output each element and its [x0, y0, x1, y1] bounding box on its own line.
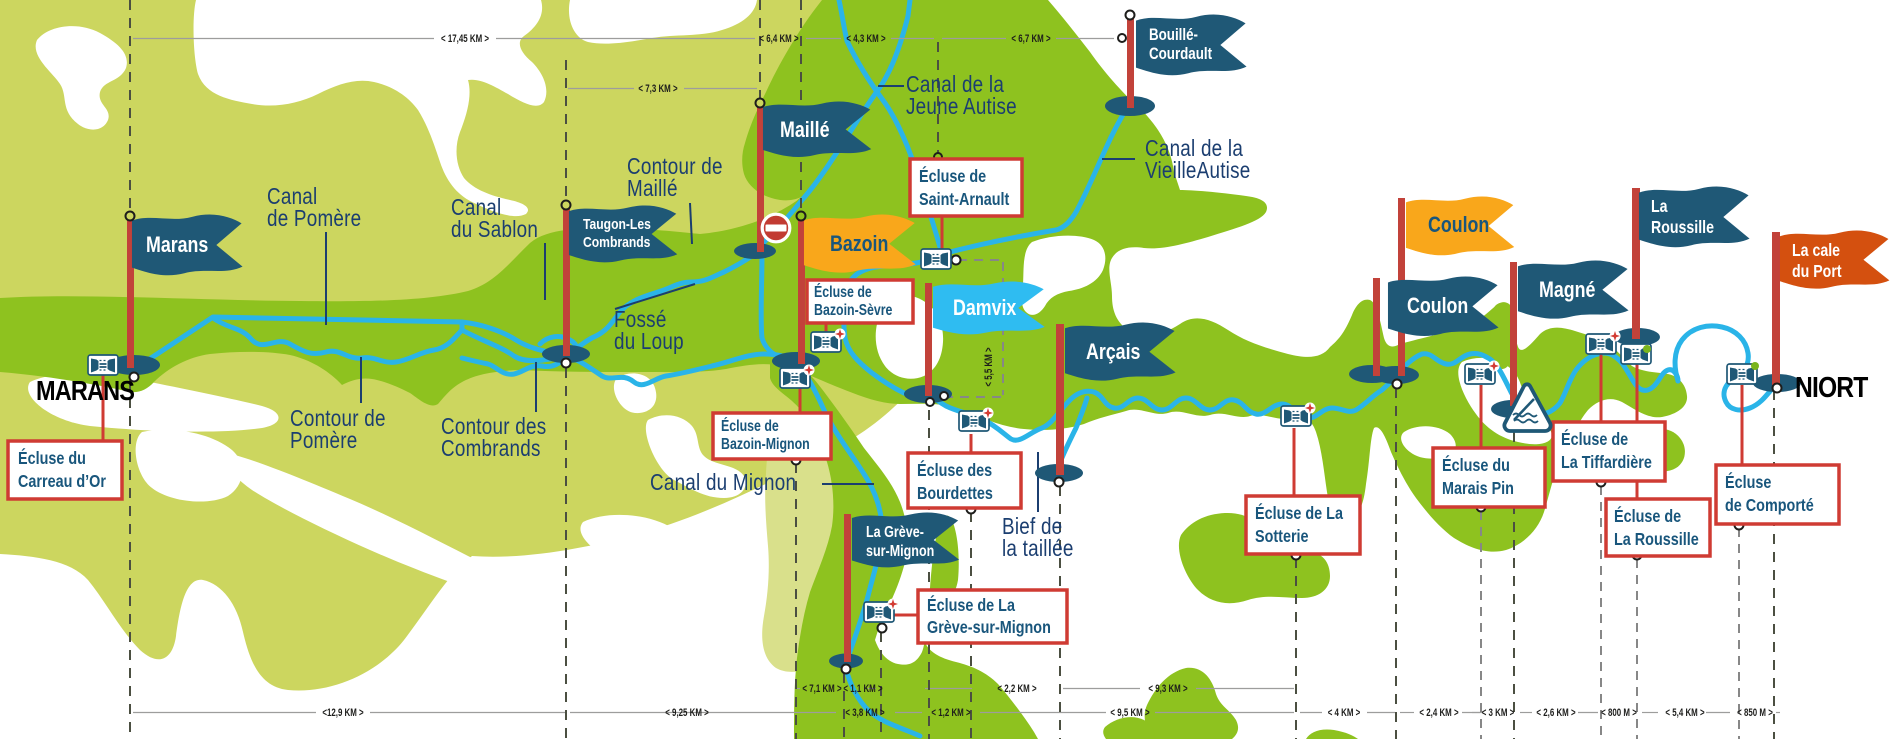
svg-text:Bazoin-Sèvre: Bazoin-Sèvre — [814, 301, 893, 319]
svg-text:Marans: Marans — [146, 233, 208, 257]
svg-text:Jeune Autise: Jeune Autise — [906, 94, 1017, 119]
svg-text:Écluse de: Écluse de — [814, 283, 872, 301]
svg-text:du Sablon: du Sablon — [451, 217, 538, 242]
svg-text:Coulon: Coulon — [1428, 213, 1489, 237]
svg-text:NIORT: NIORT — [1795, 371, 1869, 403]
svg-text:Bouillé-: Bouillé- — [1149, 26, 1198, 45]
svg-text:< 9,5 KM >: < 9,5 KM > — [1110, 707, 1149, 720]
svg-text:Maillé: Maillé — [627, 176, 678, 201]
svg-text:Roussille: Roussille — [1651, 219, 1714, 238]
svg-text:<12,9 KM >: <12,9 KM > — [322, 707, 364, 720]
svg-text:< 800 M >: < 800 M > — [1601, 707, 1637, 720]
svg-text:< 4,3 KM >: < 4,3 KM > — [846, 33, 885, 46]
svg-text:de Comporté: de Comporté — [1725, 496, 1814, 516]
svg-text:Magné: Magné — [1539, 278, 1595, 302]
svg-text:Bourdettes: Bourdettes — [917, 484, 993, 504]
svg-text:la taillée: la taillée — [1002, 536, 1074, 561]
svg-text:La cale: La cale — [1792, 242, 1840, 261]
svg-text:du Loup: du Loup — [614, 329, 684, 354]
svg-text:< 3 KM >: < 3 KM > — [1482, 707, 1515, 720]
svg-text:< 1,2 KM >: < 1,2 KM > — [931, 707, 970, 720]
svg-text:< 7,1 KM >: < 7,1 KM > — [802, 683, 841, 696]
svg-text:< 9,3 KM >: < 9,3 KM > — [1148, 683, 1187, 696]
svg-text:< 850 M >: < 850 M > — [1737, 707, 1773, 720]
svg-text:Pomère: Pomère — [290, 428, 357, 453]
svg-text:du Port: du Port — [1792, 263, 1842, 282]
svg-text:Écluse de: Écluse de — [721, 417, 779, 435]
svg-text:< 4 KM >: < 4 KM > — [1328, 707, 1361, 720]
svg-text:Écluse de La: Écluse de La — [927, 594, 1016, 615]
svg-text:Combrands: Combrands — [441, 436, 541, 461]
svg-text:La Tiffardière: La Tiffardière — [1561, 453, 1652, 473]
svg-text:Bazoin-Mignon: Bazoin-Mignon — [721, 435, 810, 453]
svg-text:< 5,5 KM >: < 5,5 KM > — [983, 347, 996, 386]
svg-text:< 17,45 KM >: < 17,45 KM > — [441, 33, 489, 46]
svg-text:Écluse de: Écluse de — [919, 165, 986, 186]
svg-text:< 3,8 KM >: < 3,8 KM > — [845, 707, 884, 720]
svg-text:Écluse de: Écluse de — [1561, 428, 1628, 449]
svg-text:Écluse de: Écluse de — [1614, 505, 1681, 526]
svg-text:La Grève-: La Grève- — [866, 523, 924, 541]
svg-text:< 5,4 KM >: < 5,4 KM > — [1665, 707, 1704, 720]
svg-text:< 1,1 KM >: < 1,1 KM > — [843, 683, 882, 696]
svg-text:La Roussille: La Roussille — [1614, 530, 1699, 550]
svg-text:Écluse du: Écluse du — [18, 447, 86, 468]
svg-text:sur-Mignon: sur-Mignon — [866, 542, 934, 560]
svg-text:Saint-Arnault: Saint-Arnault — [919, 190, 1010, 210]
svg-text:< 2,6 KM >: < 2,6 KM > — [1536, 707, 1575, 720]
svg-text:Taugon-Les: Taugon-Les — [583, 216, 651, 232]
svg-text:Maillé: Maillé — [780, 118, 829, 142]
svg-text:< 7,3 KM >: < 7,3 KM > — [638, 83, 677, 96]
svg-text:Arçais: Arçais — [1086, 340, 1140, 364]
svg-text:< 9,25 KM >: < 9,25 KM > — [665, 707, 709, 720]
svg-text:Écluse: Écluse — [1725, 471, 1771, 492]
svg-text:Écluse de La: Écluse de La — [1255, 502, 1344, 523]
svg-text:MARANS: MARANS — [36, 376, 135, 406]
svg-text:La: La — [1651, 198, 1668, 217]
svg-text:Coulon: Coulon — [1407, 294, 1468, 318]
svg-text:< 2,2 KM >: < 2,2 KM > — [997, 683, 1036, 696]
svg-text:Damvix: Damvix — [953, 296, 1016, 320]
svg-text:Combrands: Combrands — [583, 234, 651, 250]
svg-text:Canal du Mignon: Canal du Mignon — [650, 470, 796, 495]
svg-text:VieilleAutise: VieilleAutise — [1145, 158, 1251, 183]
svg-text:< 6,7 KM >: < 6,7 KM > — [1011, 33, 1050, 46]
svg-text:Écluse du: Écluse du — [1442, 454, 1510, 475]
svg-text:< 6,4 KM >: < 6,4 KM > — [759, 33, 798, 46]
svg-text:< 2,4 KM >: < 2,4 KM > — [1419, 707, 1458, 720]
svg-text:Écluse des: Écluse des — [917, 459, 992, 480]
svg-text:Marais Pin: Marais Pin — [1442, 479, 1514, 499]
svg-text:Grève-sur-Mignon: Grève-sur-Mignon — [927, 618, 1051, 638]
svg-text:Courdault: Courdault — [1149, 45, 1212, 64]
svg-text:Carreau d’Or: Carreau d’Or — [18, 472, 107, 492]
svg-text:Bazoin: Bazoin — [830, 232, 888, 256]
svg-text:Sotterie: Sotterie — [1255, 527, 1309, 547]
svg-text:de Pomère: de Pomère — [267, 206, 361, 231]
